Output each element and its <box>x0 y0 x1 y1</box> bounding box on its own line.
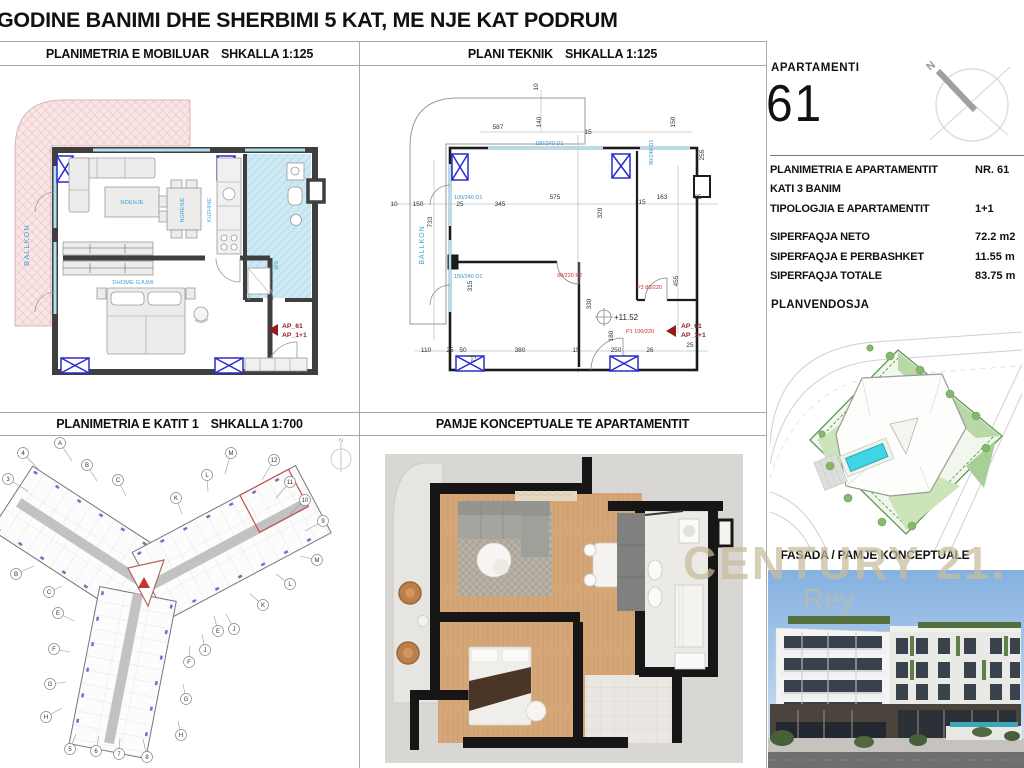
panel-title: PAMJE KONCEPTUALE TE APARTAMENTIT <box>436 417 689 431</box>
door-labels-red: 90/220 P2 P3 80/220 P1 100/220 <box>557 273 662 335</box>
svg-text:180/240 D1: 180/240 D1 <box>535 141 563 147</box>
svg-text:25: 25 <box>686 342 694 349</box>
walls <box>448 148 710 370</box>
svg-text:C: C <box>116 478 121 484</box>
wing-right <box>132 466 331 620</box>
svg-text:575: 575 <box>550 194 561 201</box>
divider <box>766 41 767 768</box>
svg-text:P1 100/220: P1 100/220 <box>626 329 654 335</box>
technical-floor-plan: BALLKON <box>360 65 760 408</box>
info-row: SIPERFAQJA E PERBASHKET 11.55 m <box>770 247 1022 267</box>
siteplan-title: PLANVENDOSJA <box>771 299 869 311</box>
svg-text:345: 345 <box>495 201 506 208</box>
site-plan <box>770 316 1022 550</box>
svg-text:H: H <box>179 733 183 739</box>
svg-text:E: E <box>56 611 60 617</box>
svg-text:180: 180 <box>608 330 615 341</box>
info-label: PLANIMETRIA E APARTAMENTIT <box>770 164 975 176</box>
dimension-texts: 587 140 10 15 150 10 150 733 25 345 575 … <box>390 83 706 363</box>
floor1-compass-icon: N <box>331 438 351 472</box>
panel-scale: SHKALLA 1:125 <box>221 47 313 61</box>
panel-title: PLANIMETRIA E MOBILUAR <box>46 47 209 61</box>
svg-text:DHOME GJUMI: DHOME GJUMI <box>112 280 154 286</box>
svg-text:25: 25 <box>694 194 702 201</box>
apartment-label: APARTAMENTI <box>771 62 860 74</box>
divider <box>770 155 1024 156</box>
svg-text:N: N <box>924 59 938 73</box>
svg-text:11: 11 <box>287 480 294 486</box>
panel-title: PLANI TEKNIK <box>468 47 553 61</box>
svg-text:WS: WS <box>274 260 280 269</box>
svg-text:455: 455 <box>673 275 680 286</box>
svg-text:15: 15 <box>584 129 592 136</box>
svg-text:733: 733 <box>427 216 434 227</box>
elevation-marker: +11.52 <box>595 308 639 326</box>
panel-header-floor1: PLANIMETRIA E KATIT 1 SHKALLA 1:700 <box>0 412 359 435</box>
svg-text:K: K <box>174 496 178 502</box>
info-label: SIPERFAQJA TOTALE <box>770 270 975 282</box>
info-label: KATI 3 BANIM <box>770 183 975 195</box>
info-row: SIPERFAQJA NETO 72.2 m2 <box>770 228 1022 248</box>
svg-text:M: M <box>315 558 320 564</box>
svg-text:+11.52: +11.52 <box>614 313 639 322</box>
panel-header-furnished: PLANIMETRIA E MOBILUAR SHKALLA 1:125 <box>0 42 359 65</box>
apartment-info: PLANIMETRIA E APARTAMENTIT NR. 61 KATI 3… <box>770 160 1022 286</box>
plan-sheet: GODINE BANIMI DHE SHERBIMI 5 KAT, ME NJE… <box>0 0 1024 768</box>
svg-text:H: H <box>44 715 48 721</box>
svg-text:150/240 D1: 150/240 D1 <box>454 274 482 280</box>
concept-3d-view <box>363 435 766 768</box>
info-row: KATI 3 BANIM <box>770 180 1022 200</box>
fasada-title: FASADA / PAMJE KONCEPTUALE <box>766 548 984 562</box>
apartment-number: 61 <box>766 74 823 134</box>
svg-text:12: 12 <box>271 458 278 464</box>
svg-text:163: 163 <box>657 194 668 201</box>
svg-text:AP_1+1: AP_1+1 <box>681 332 706 339</box>
svg-text:B: B <box>85 463 89 469</box>
svg-text:150: 150 <box>670 116 677 127</box>
building-right-block <box>890 622 1021 704</box>
svg-text:C: C <box>47 590 52 596</box>
svg-text:10: 10 <box>302 498 309 504</box>
svg-text:BALLKON: BALLKON <box>22 224 31 266</box>
info-label: SIPERFAQJA NETO <box>770 231 975 243</box>
info-value: 1+1 <box>975 203 1022 215</box>
info-label: TIPOLOGJIA E APARTAMENTIT <box>770 203 975 215</box>
svg-text:G: G <box>48 682 53 688</box>
svg-text:140: 140 <box>536 116 543 127</box>
svg-text:P3 80/220: P3 80/220 <box>637 285 662 291</box>
svg-text:587: 587 <box>493 124 504 131</box>
svg-text:BALLKON: BALLKON <box>419 225 426 264</box>
svg-text:B: B <box>14 572 18 578</box>
svg-text:50: 50 <box>459 347 467 354</box>
svg-text:255: 255 <box>699 149 706 160</box>
svg-text:AP_1+1: AP_1+1 <box>282 332 307 339</box>
svg-text:K: K <box>261 603 265 609</box>
svg-text:KUZHINE: KUZHINE <box>207 198 213 222</box>
panel-scale: SHKALLA 1:125 <box>565 47 657 61</box>
svg-text:250: 250 <box>611 347 622 354</box>
svg-text:320: 320 <box>597 207 604 218</box>
info-row: PLANIMETRIA E APARTAMENTIT NR. 61 <box>770 160 1022 180</box>
svg-text:E: E <box>216 629 220 635</box>
svg-text:150: 150 <box>413 201 424 208</box>
svg-text:F: F <box>52 647 56 653</box>
panel-header-concept: PAMJE KONCEPTUALE TE APARTAMENTIT <box>359 412 766 435</box>
info-row: SIPERFAQJA TOTALE 83.75 m <box>770 267 1022 287</box>
floor1-plan: 4 A B 3 C M 12 L 11 K 10 9 M L B C K E J… <box>0 436 360 768</box>
panel-title: PLANIMETRIA E KATIT 1 <box>56 417 198 431</box>
svg-text:90/220 P2: 90/220 P2 <box>557 273 582 279</box>
info-value: 72.2 m2 <box>975 231 1022 243</box>
svg-text:25: 25 <box>456 201 464 208</box>
apartment-marker: AP_61 AP_1+1 <box>666 323 706 339</box>
svg-text:J: J <box>233 627 236 633</box>
info-value: 11.55 m <box>975 251 1022 263</box>
svg-text:90/240 D1: 90/240 D1 <box>649 140 655 165</box>
svg-text:NDENJE: NDENJE <box>120 200 143 206</box>
svg-text:J: J <box>204 648 207 654</box>
svg-text:100/240 D1: 100/240 D1 <box>454 195 482 201</box>
apartment-marker: AP_61 AP_1+1 <box>268 323 307 339</box>
svg-text:G: G <box>184 697 189 703</box>
svg-text:330: 330 <box>586 298 593 309</box>
info-label: SIPERFAQJA E PERBASHKET <box>770 251 975 263</box>
svg-text:N: N <box>339 438 343 444</box>
sheet-title: GODINE BANIMI DHE SHERBIMI 5 KAT, ME NJE… <box>0 8 618 33</box>
info-value: 83.75 m <box>975 270 1022 282</box>
svg-text:NGRENIE: NGRENIE <box>180 197 186 222</box>
compass-icon: N <box>920 55 1020 150</box>
svg-text:315: 315 <box>467 280 474 291</box>
panel-scale: SHKALLA 1:700 <box>211 417 303 431</box>
info-row: TIPOLOGJIA E APARTAMENTIT 1+1 <box>770 199 1022 219</box>
svg-text:380: 380 <box>515 347 526 354</box>
svg-text:A: A <box>58 441 62 447</box>
svg-text:AP_61: AP_61 <box>282 323 303 330</box>
svg-text:26: 26 <box>646 347 654 354</box>
svg-text:25: 25 <box>446 347 454 354</box>
svg-text:15: 15 <box>572 347 580 354</box>
svg-text:10: 10 <box>390 201 398 208</box>
svg-text:110: 110 <box>421 347 432 354</box>
info-value: NR. 61 <box>975 164 1022 176</box>
svg-text:AP_61: AP_61 <box>681 323 702 330</box>
svg-text:F: F <box>187 660 191 666</box>
furnished-floor-plan: BALLKON WS <box>5 70 350 410</box>
svg-text:M: M <box>229 451 234 457</box>
svg-text:15: 15 <box>638 199 646 206</box>
panel-header-technical: PLANI TEKNIK SHKALLA 1:125 <box>359 42 766 65</box>
svg-text:10: 10 <box>533 83 540 91</box>
fasada-render <box>768 570 1024 768</box>
wing-lower <box>69 587 176 759</box>
svg-text:73: 73 <box>471 355 478 363</box>
